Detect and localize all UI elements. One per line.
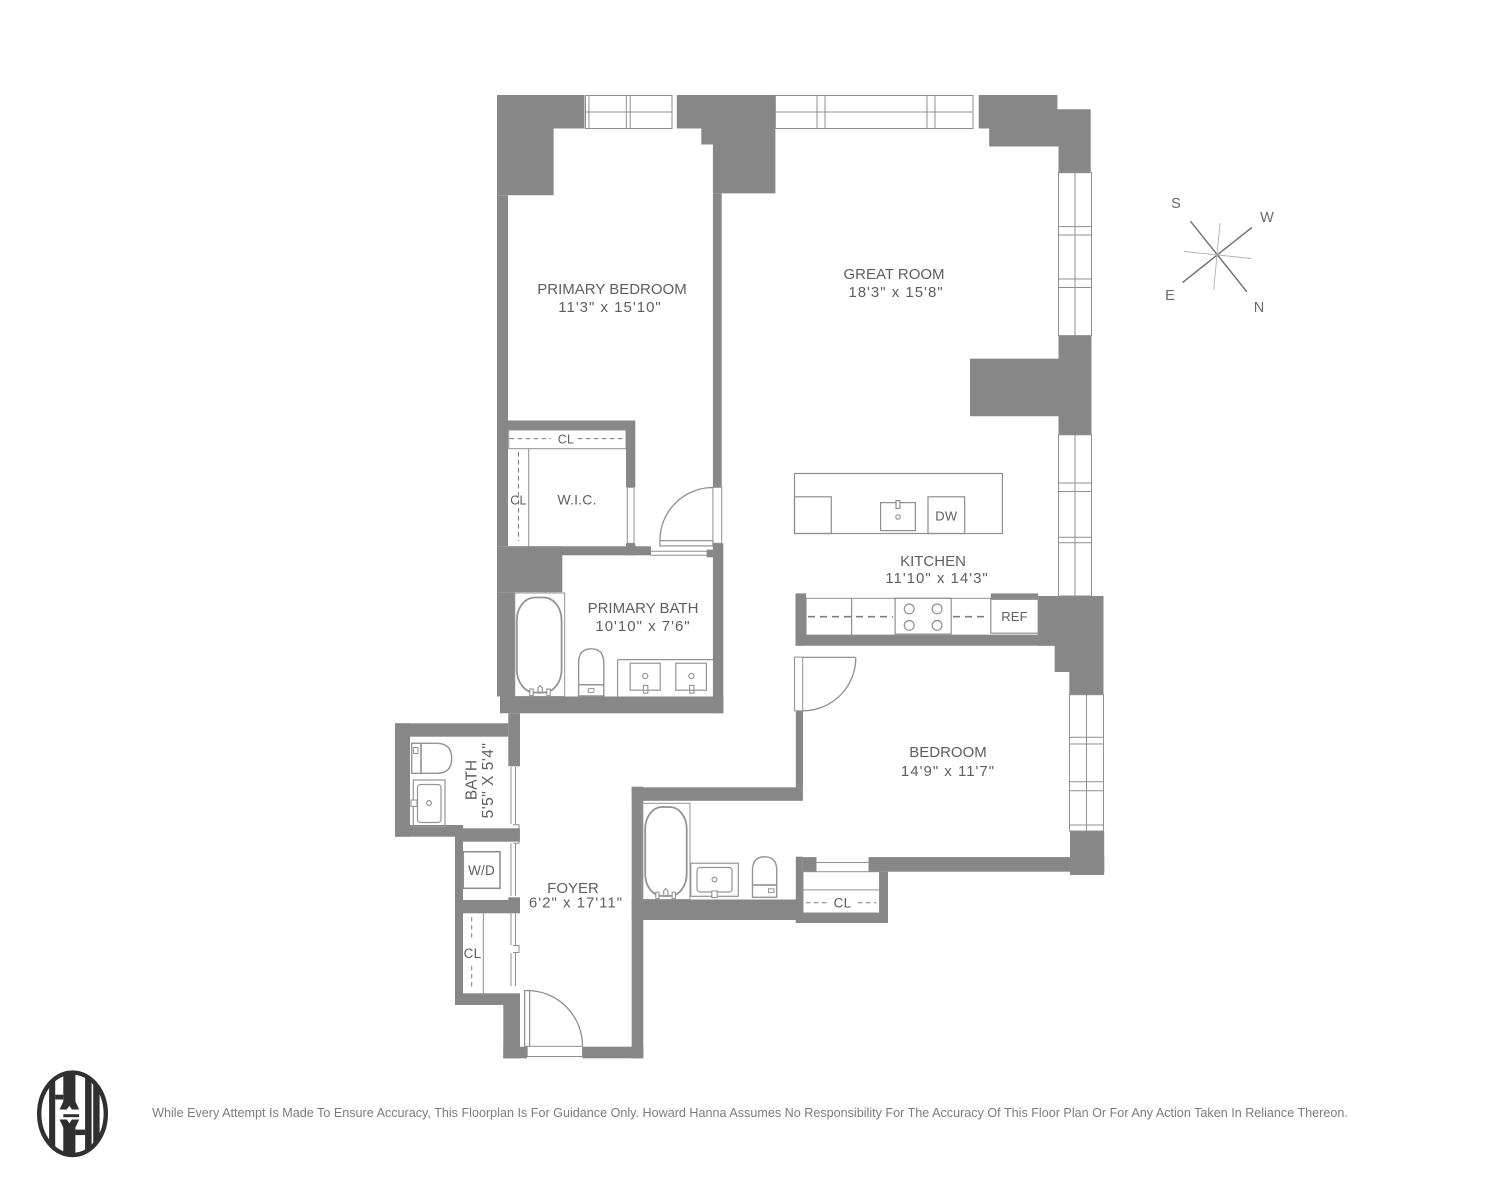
svg-text:5'5" X 5'4": 5'5" X 5'4" (480, 743, 497, 819)
svg-text:While Every Attempt Is Made To: While Every Attempt Is Made To Ensure Ac… (152, 1106, 1348, 1120)
svg-text:N: N (1254, 300, 1264, 316)
svg-text:S: S (1171, 196, 1181, 212)
svg-text:REF: REF (1001, 609, 1028, 624)
svg-text:CL: CL (558, 433, 574, 447)
svg-text:GREAT ROOM: GREAT ROOM (843, 266, 944, 283)
svg-text:BEDROOM: BEDROOM (909, 744, 987, 761)
svg-text:W.I.C.: W.I.C. (557, 492, 596, 508)
svg-text:6'2" x 17'11": 6'2" x 17'11" (529, 895, 623, 912)
svg-text:CL: CL (464, 946, 482, 961)
svg-text:CL: CL (834, 896, 852, 911)
svg-text:11'3" x 15'10": 11'3" x 15'10" (558, 299, 662, 316)
svg-text:DW: DW (935, 509, 958, 524)
svg-text:KITCHEN: KITCHEN (900, 553, 966, 570)
svg-text:W: W (1260, 210, 1274, 226)
svg-text:10'10" x 7'6": 10'10" x 7'6" (595, 618, 690, 635)
svg-text:CL: CL (510, 494, 526, 508)
svg-text:18'3" x 15'8": 18'3" x 15'8" (848, 284, 943, 301)
svg-text:PRIMARY BEDROOM: PRIMARY BEDROOM (537, 281, 686, 298)
svg-text:W/D: W/D (468, 863, 495, 878)
svg-text:E: E (1165, 288, 1175, 304)
svg-text:11'10" x 14'3": 11'10" x 14'3" (885, 570, 989, 587)
svg-text:14'9" x 11'7": 14'9" x 11'7" (901, 763, 995, 780)
svg-text:BATH: BATH (464, 760, 481, 800)
svg-text:PRIMARY BATH: PRIMARY BATH (588, 600, 699, 617)
